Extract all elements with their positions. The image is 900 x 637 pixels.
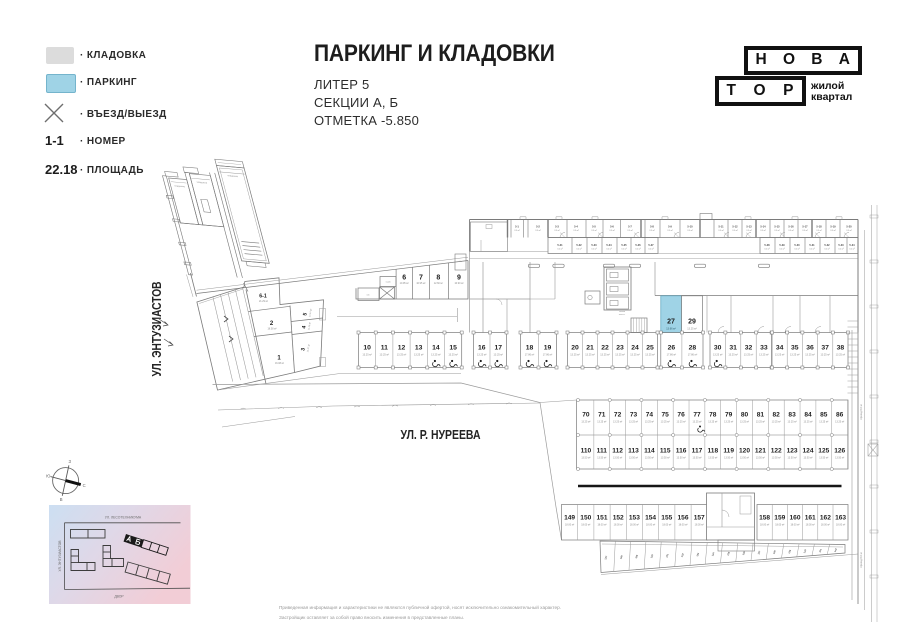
svg-text:6: 6 xyxy=(402,275,406,282)
svg-text:3.5 м²: 3.5 м² xyxy=(816,229,822,232)
svg-text:5-33: 5-33 xyxy=(838,243,844,247)
svg-text:114: 114 xyxy=(644,448,655,455)
svg-text:163: 163 xyxy=(835,515,846,522)
svg-text:3.2 м²: 3.2 м² xyxy=(621,247,627,250)
svg-text:111: 111 xyxy=(597,448,608,455)
svg-text:13.50 м²: 13.50 м² xyxy=(819,456,828,459)
svg-text:19: 19 xyxy=(544,345,552,352)
svg-text:3.5 м²: 3.5 м² xyxy=(802,229,808,232)
svg-text:18.00 м²: 18.00 м² xyxy=(821,523,830,526)
svg-text:140: 140 xyxy=(803,548,807,553)
svg-text:138: 138 xyxy=(774,550,777,555)
svg-text:127: 127 xyxy=(605,555,608,560)
svg-text:13.50 м²: 13.50 м² xyxy=(788,456,797,459)
svg-text:36: 36 xyxy=(806,345,814,352)
svg-text:5-8: 5-8 xyxy=(650,225,654,229)
svg-text:3.5 м²: 3.5 м² xyxy=(535,229,541,232)
svg-text:3.5 м²: 3.5 м² xyxy=(609,229,615,232)
svg-text:3.5 м²: 3.5 м² xyxy=(687,229,693,232)
svg-text:18.00 м²: 18.00 м² xyxy=(806,523,815,526)
svg-text:72: 72 xyxy=(614,412,622,419)
svg-text:13.34 м²: 13.34 м² xyxy=(308,308,312,317)
svg-text:156: 156 xyxy=(677,515,688,522)
svg-text:3.2 м²: 3.2 м² xyxy=(849,247,855,250)
svg-text:5-21: 5-21 xyxy=(557,243,563,247)
svg-text:70: 70 xyxy=(582,412,590,419)
svg-text:13.25 м²: 13.25 м² xyxy=(581,420,590,423)
svg-text:13.25 м²: 13.25 м² xyxy=(397,354,407,357)
svg-text:5-31: 5-31 xyxy=(809,243,815,247)
svg-text:121: 121 xyxy=(755,448,766,455)
svg-text:3.5 м²: 3.5 м² xyxy=(649,229,655,232)
svg-text:151: 151 xyxy=(596,515,607,522)
svg-text:115: 115 xyxy=(660,448,671,455)
svg-text:82: 82 xyxy=(773,412,781,419)
svg-text:10.90 м²: 10.90 м² xyxy=(454,282,463,285)
svg-text:13.25 м²: 13.25 м² xyxy=(744,354,754,357)
svg-text:5-10: 5-10 xyxy=(687,225,693,229)
svg-text:5-11: 5-11 xyxy=(718,225,724,229)
svg-text:18.00 м²: 18.00 м² xyxy=(630,523,639,526)
svg-text:5-20: 5-20 xyxy=(846,225,852,229)
svg-text:16: 16 xyxy=(478,345,486,352)
svg-text:схема: схема xyxy=(619,311,626,313)
svg-text:13.50 м²: 13.50 м² xyxy=(803,456,812,459)
svg-text:37: 37 xyxy=(821,345,829,352)
svg-text:17.86 м²: 17.86 м² xyxy=(525,354,535,357)
svg-text:5-17: 5-17 xyxy=(802,225,808,229)
svg-text:3.2 м²: 3.2 м² xyxy=(809,247,815,250)
svg-text:81: 81 xyxy=(757,412,765,419)
svg-text:124: 124 xyxy=(802,448,813,455)
svg-text:17.86 м²: 17.86 м² xyxy=(688,354,698,357)
svg-text:7: 7 xyxy=(419,275,423,282)
svg-text:21: 21 xyxy=(586,345,594,352)
svg-text:128: 128 xyxy=(620,555,623,560)
svg-text:3.2 м²: 3.2 м² xyxy=(576,247,582,250)
svg-text:149: 149 xyxy=(564,515,575,522)
svg-text:З: З xyxy=(69,459,72,464)
svg-text:153: 153 xyxy=(629,515,640,522)
svg-text:83: 83 xyxy=(788,412,796,419)
svg-text:Ю: Ю xyxy=(46,473,51,478)
svg-text:13.25 м²: 13.25 м² xyxy=(788,420,797,423)
svg-text:б/к: б/к xyxy=(459,261,462,263)
svg-text:18.00 м²: 18.00 м² xyxy=(678,523,687,526)
svg-text:4: 4 xyxy=(301,325,307,329)
svg-text:141: 141 xyxy=(818,548,822,553)
svg-text:27: 27 xyxy=(667,319,675,326)
svg-text:3: 3 xyxy=(300,347,306,351)
svg-text:кладовые: кладовые xyxy=(197,182,209,185)
svg-text:126: 126 xyxy=(834,448,845,455)
svg-text:154: 154 xyxy=(645,515,656,522)
svg-text:17: 17 xyxy=(494,345,502,352)
svg-text:3.2 м²: 3.2 м² xyxy=(648,247,654,250)
svg-text:17.86 м²: 17.86 м² xyxy=(667,354,677,357)
svg-text:119: 119 xyxy=(723,448,734,455)
svg-text:5-19: 5-19 xyxy=(830,225,836,229)
svg-text:3.2 м²: 3.2 м² xyxy=(838,247,844,250)
svg-text:13.25 м²: 13.25 м² xyxy=(414,354,424,357)
svg-text:13.25 м²: 13.25 м² xyxy=(629,420,638,423)
svg-text:35: 35 xyxy=(791,345,799,352)
svg-text:18.00 м²: 18.00 м² xyxy=(614,523,623,526)
svg-text:13.25 м²: 13.25 м² xyxy=(756,420,765,423)
svg-text:155: 155 xyxy=(661,515,672,522)
svg-text:3.5 м²: 3.5 м² xyxy=(788,229,794,232)
svg-text:123: 123 xyxy=(787,448,798,455)
svg-text:136: 136 xyxy=(743,551,746,556)
svg-text:157: 157 xyxy=(694,515,705,522)
svg-text:78: 78 xyxy=(709,412,717,419)
svg-text:117: 117 xyxy=(692,448,703,455)
svg-text:32: 32 xyxy=(745,345,753,352)
svg-text:13.25 м²: 13.25 м² xyxy=(819,420,828,423)
svg-text:13.25 м²: 13.25 м² xyxy=(600,354,610,357)
svg-text:158: 158 xyxy=(759,515,770,522)
svg-text:18.00 м²: 18.00 м² xyxy=(565,523,574,526)
svg-text:13.50 м²: 13.50 м² xyxy=(835,456,844,459)
svg-text:2: 2 xyxy=(270,321,274,327)
svg-text:проезд 6.0 м: проезд 6.0 м xyxy=(859,404,863,419)
svg-text:131: 131 xyxy=(666,553,669,558)
svg-text:13.25 м²: 13.25 м² xyxy=(772,420,781,423)
svg-text:5-25: 5-25 xyxy=(621,243,627,247)
svg-text:В: В xyxy=(60,497,63,502)
svg-text:13.25 м²: 13.25 м² xyxy=(493,354,503,357)
svg-text:5: 5 xyxy=(302,312,308,316)
svg-text:13.25 м²: 13.25 м² xyxy=(661,420,670,423)
svg-text:18.00 м²: 18.00 м² xyxy=(695,523,704,526)
svg-text:13.25 м²: 13.25 м² xyxy=(431,354,441,357)
svg-text:5-1: 5-1 xyxy=(515,225,519,229)
svg-text:34: 34 xyxy=(776,345,784,352)
svg-text:13.25 м²: 13.25 м² xyxy=(740,420,749,423)
svg-text:74: 74 xyxy=(646,412,654,419)
svg-text:16.08 м²: 16.08 м² xyxy=(275,362,284,365)
svg-text:3.5 м²: 3.5 м² xyxy=(573,229,579,232)
svg-text:13.25 м²: 13.25 м² xyxy=(677,420,686,423)
svg-text:152: 152 xyxy=(613,515,624,522)
svg-text:5-16: 5-16 xyxy=(788,225,794,229)
svg-text:5-4: 5-4 xyxy=(574,225,578,229)
svg-text:30: 30 xyxy=(714,345,722,352)
svg-text:13.25 м²: 13.25 м² xyxy=(759,354,769,357)
svg-text:129: 129 xyxy=(636,554,639,559)
svg-text:13.50 м²: 13.50 м² xyxy=(581,456,590,459)
svg-text:18.58 м²: 18.58 м² xyxy=(267,328,276,331)
svg-text:86: 86 xyxy=(836,412,844,419)
svg-text:5-34: 5-34 xyxy=(849,243,855,247)
svg-text:28: 28 xyxy=(689,345,697,352)
svg-text:13.25 м²: 13.25 м² xyxy=(570,354,580,357)
svg-text:31: 31 xyxy=(729,345,737,352)
svg-text:22: 22 xyxy=(601,345,609,352)
svg-text:5-14: 5-14 xyxy=(760,225,766,229)
svg-text:13.25 м²: 13.25 м² xyxy=(724,420,733,423)
svg-text:УЛ. ЭНТУЗИАСТОВ: УЛ. ЭНТУЗИАСТОВ xyxy=(58,540,62,572)
svg-text:14: 14 xyxy=(432,345,440,352)
svg-text:13.50 м²: 13.50 м² xyxy=(708,456,717,459)
svg-text:6-1: 6-1 xyxy=(259,294,267,300)
svg-text:13.25 м²: 13.25 м² xyxy=(692,420,701,423)
svg-text:лестн.: лестн. xyxy=(619,314,626,316)
svg-text:84: 84 xyxy=(804,412,812,419)
svg-text:13.25 м²: 13.25 м² xyxy=(775,354,785,357)
svg-text:13.50 м²: 13.50 м² xyxy=(756,456,765,459)
svg-text:5-26: 5-26 xyxy=(635,243,641,247)
svg-text:13.50 м²: 13.50 м² xyxy=(724,456,733,459)
svg-text:80: 80 xyxy=(741,412,749,419)
svg-text:134: 134 xyxy=(711,551,715,556)
svg-text:113: 113 xyxy=(628,448,639,455)
svg-text:20: 20 xyxy=(571,345,579,352)
svg-text:13.50 м²: 13.50 м² xyxy=(597,456,606,459)
svg-text:5-18: 5-18 xyxy=(816,225,822,229)
svg-text:13.66 м²: 13.66 м² xyxy=(666,328,676,331)
svg-text:9: 9 xyxy=(457,275,461,282)
svg-text:142: 142 xyxy=(834,547,838,552)
svg-text:13.50 м²: 13.50 м² xyxy=(692,456,701,459)
svg-text:76: 76 xyxy=(677,412,685,419)
svg-text:3.2 м²: 3.2 м² xyxy=(779,247,785,250)
svg-text:13.25 м²: 13.25 м² xyxy=(380,354,390,357)
svg-text:3.5 м²: 3.5 м² xyxy=(627,229,633,232)
svg-text:13.25 м²: 13.25 м² xyxy=(820,354,830,357)
svg-text:150: 150 xyxy=(580,515,591,522)
svg-text:13.25 м²: 13.25 м² xyxy=(645,420,654,423)
svg-text:12: 12 xyxy=(398,345,406,352)
svg-text:13.25 м²: 13.25 м² xyxy=(805,354,815,357)
svg-text:УЛ. Р. НУРЕЕВА: УЛ. Р. НУРЕЕВА xyxy=(401,427,481,442)
svg-text:13.25 м²: 13.25 м² xyxy=(687,328,697,331)
svg-text:5-29: 5-29 xyxy=(779,243,785,247)
svg-text:73: 73 xyxy=(630,412,638,419)
svg-text:13.25 м²: 13.25 м² xyxy=(597,420,606,423)
svg-text:118: 118 xyxy=(707,448,718,455)
svg-text:130: 130 xyxy=(651,554,654,559)
svg-text:5-9: 5-9 xyxy=(668,225,672,229)
svg-text:18.00 м²: 18.00 м² xyxy=(581,523,590,526)
svg-text:5-5: 5-5 xyxy=(592,225,596,229)
svg-text:13.25 м²: 13.25 м² xyxy=(728,354,738,357)
svg-text:3.2 м²: 3.2 м² xyxy=(635,247,641,250)
svg-text:там6: там6 xyxy=(386,282,392,284)
svg-text:38: 38 xyxy=(837,345,845,352)
svg-text:18.00 м²: 18.00 м² xyxy=(662,523,671,526)
svg-text:12.60 м²: 12.60 м² xyxy=(434,282,443,285)
svg-text:125: 125 xyxy=(818,448,829,455)
svg-text:33: 33 xyxy=(760,345,768,352)
svg-text:10: 10 xyxy=(363,345,371,352)
svg-text:13.50 м²: 13.50 м² xyxy=(629,456,638,459)
svg-text:3.5 м²: 3.5 м² xyxy=(760,229,766,232)
svg-text:29: 29 xyxy=(688,319,696,326)
svg-text:13.25 м²: 13.25 м² xyxy=(613,420,622,423)
svg-text:3.5 м²: 3.5 м² xyxy=(746,229,752,232)
svg-text:13.25 м²: 13.25 м² xyxy=(835,420,844,423)
svg-text:18.00 м²: 18.00 м² xyxy=(836,523,845,526)
svg-text:5-30: 5-30 xyxy=(794,243,800,247)
svg-text:проезд 6.0 м: проезд 6.0 м xyxy=(859,552,863,567)
svg-text:5-27: 5-27 xyxy=(648,243,654,247)
svg-text:15: 15 xyxy=(449,345,457,352)
svg-text:3.2 м²: 3.2 м² xyxy=(794,247,800,250)
svg-text:13.50 м²: 13.50 м² xyxy=(661,456,670,459)
svg-text:18.00 м²: 18.00 м² xyxy=(760,523,769,526)
svg-text:3.2 м²: 3.2 м² xyxy=(824,247,830,250)
svg-text:УЛ. ЛЕСОТЕХНИКУМА: УЛ. ЛЕСОТЕХНИКУМА xyxy=(105,516,142,520)
svg-text:13.50 м²: 13.50 м² xyxy=(772,456,781,459)
svg-text:132: 132 xyxy=(682,553,685,558)
svg-text:13.25 м²: 13.25 м² xyxy=(645,354,655,357)
svg-text:137: 137 xyxy=(758,550,761,555)
svg-text:кладовые: кладовые xyxy=(174,185,186,188)
svg-text:5-22: 5-22 xyxy=(576,243,582,247)
svg-text:С: С xyxy=(83,483,86,488)
svg-text:24: 24 xyxy=(631,345,639,352)
svg-text:кладовые: кладовые xyxy=(227,175,239,178)
svg-text:13.50 м²: 13.50 м² xyxy=(677,456,686,459)
svg-text:10.95 м²: 10.95 м² xyxy=(416,282,425,285)
svg-text:3.2 м²: 3.2 м² xyxy=(764,247,770,250)
svg-text:133: 133 xyxy=(697,552,700,557)
svg-text:110: 110 xyxy=(581,448,592,455)
svg-text:5-23: 5-23 xyxy=(591,243,597,247)
svg-text:5-7: 5-7 xyxy=(628,225,632,229)
svg-text:5-3: 5-3 xyxy=(555,225,559,229)
svg-text:13.25 м²: 13.25 м² xyxy=(708,420,717,423)
svg-text:13.25 м²: 13.25 м² xyxy=(585,354,595,357)
svg-text:3.5 м²: 3.5 м² xyxy=(514,229,520,232)
svg-text:13.25 м²: 13.25 м² xyxy=(630,354,640,357)
svg-text:13.25 м²: 13.25 м² xyxy=(615,354,625,357)
svg-text:5-13: 5-13 xyxy=(746,225,752,229)
svg-text:10.95 м²: 10.95 м² xyxy=(400,282,409,285)
svg-text:112: 112 xyxy=(612,448,623,455)
svg-text:139: 139 xyxy=(789,549,792,554)
svg-text:160: 160 xyxy=(789,515,800,522)
svg-text:3.5 м²: 3.5 м² xyxy=(830,229,836,232)
svg-text:18.00 м²: 18.00 м² xyxy=(646,523,655,526)
svg-text:14.37 м²: 14.37 м² xyxy=(306,344,310,353)
svg-text:17.86 м²: 17.86 м² xyxy=(543,354,553,357)
svg-text:75: 75 xyxy=(662,412,670,419)
svg-text:1: 1 xyxy=(277,356,281,362)
svg-text:13.25 м²: 13.25 м² xyxy=(803,420,812,423)
svg-text:5-2: 5-2 xyxy=(536,225,540,229)
svg-text:13.25 м²: 13.25 м² xyxy=(477,354,487,357)
svg-text:85: 85 xyxy=(820,412,828,419)
svg-text:13.50 м²: 13.50 м² xyxy=(740,456,749,459)
svg-text:5-15: 5-15 xyxy=(774,225,780,229)
svg-text:11: 11 xyxy=(381,345,388,352)
svg-text:13.25 м²: 13.25 м² xyxy=(790,354,800,357)
svg-text:13.25 м²: 13.25 м² xyxy=(362,354,372,357)
svg-text:79: 79 xyxy=(725,412,733,419)
svg-text:5-24: 5-24 xyxy=(606,243,612,247)
svg-text:23: 23 xyxy=(616,345,624,352)
svg-text:5-12: 5-12 xyxy=(732,225,738,229)
svg-text:8: 8 xyxy=(436,275,440,282)
svg-text:122: 122 xyxy=(771,448,782,455)
svg-text:13.25 м²: 13.25 м² xyxy=(448,354,458,357)
svg-text:18.00 м²: 18.00 м² xyxy=(775,523,784,526)
svg-text:13.25 м²: 13.25 м² xyxy=(713,354,723,357)
svg-text:ДВОР: ДВОР xyxy=(114,595,124,599)
svg-text:120: 120 xyxy=(739,448,750,455)
svg-text:18.00 м²: 18.00 м² xyxy=(597,523,606,526)
svg-text:5-28: 5-28 xyxy=(764,243,770,247)
svg-text:159: 159 xyxy=(774,515,785,522)
svg-text:13.50 м²: 13.50 м² xyxy=(613,456,622,459)
svg-text:3.5 м²: 3.5 м² xyxy=(732,229,738,232)
svg-text:3.2 м²: 3.2 м² xyxy=(557,247,563,250)
svg-text:3.5 м²: 3.5 м² xyxy=(718,229,724,232)
svg-text:3.5 м²: 3.5 м² xyxy=(846,229,852,232)
svg-text:13.25 м²: 13.25 м² xyxy=(836,354,846,357)
svg-text:135: 135 xyxy=(728,551,731,556)
svg-text:3.5 м²: 3.5 м² xyxy=(667,229,673,232)
svg-text:26: 26 xyxy=(668,345,676,352)
svg-text:13: 13 xyxy=(415,345,423,352)
svg-text:б/к: б/к xyxy=(367,295,370,297)
svg-text:18: 18 xyxy=(526,345,534,352)
svg-text:162: 162 xyxy=(820,515,831,522)
svg-text:3.5 м²: 3.5 м² xyxy=(591,229,597,232)
svg-text:116: 116 xyxy=(676,448,687,455)
svg-text:5-6: 5-6 xyxy=(610,225,614,229)
svg-text:71: 71 xyxy=(598,412,606,419)
svg-text:13.50 м²: 13.50 м² xyxy=(645,456,654,459)
svg-text:3.2 м²: 3.2 м² xyxy=(591,247,597,250)
svg-text:5-32: 5-32 xyxy=(824,243,830,247)
svg-text:21.29 м²: 21.29 м² xyxy=(259,300,268,303)
svg-text:77: 77 xyxy=(693,412,701,419)
svg-text:25: 25 xyxy=(646,345,654,352)
svg-text:3.5 м²: 3.5 м² xyxy=(774,229,780,232)
svg-text:3.5 м²: 3.5 м² xyxy=(554,229,560,232)
svg-text:3.2 м²: 3.2 м² xyxy=(606,247,612,250)
svg-text:11.48 м²: 11.48 м² xyxy=(307,322,311,331)
svg-text:18.00 м²: 18.00 м² xyxy=(790,523,799,526)
svg-text:161: 161 xyxy=(805,515,816,522)
